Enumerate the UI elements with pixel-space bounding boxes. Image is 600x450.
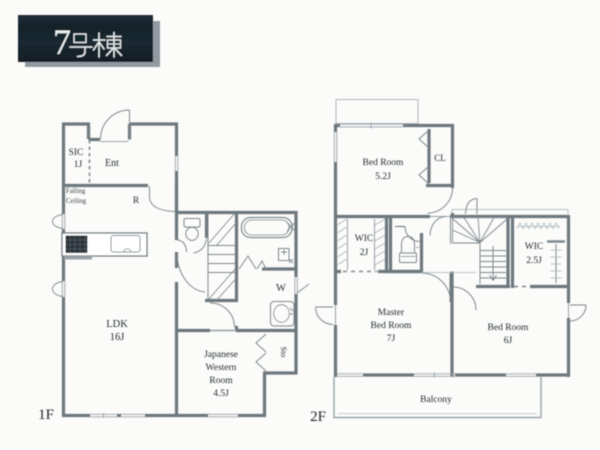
svg-text:W: W xyxy=(276,283,286,294)
svg-text:R: R xyxy=(133,196,140,206)
svg-text:1J: 1J xyxy=(74,160,83,170)
svg-text:Sto: Sto xyxy=(279,347,288,358)
svg-text:SIC: SIC xyxy=(69,148,84,158)
svg-text:Falling: Falling xyxy=(66,188,86,195)
svg-text:Bed Room: Bed Room xyxy=(363,158,405,168)
svg-text:5.2J: 5.2J xyxy=(375,172,391,182)
svg-text:1F: 1F xyxy=(38,407,54,423)
svg-text:7: 7 xyxy=(53,22,71,62)
svg-text:Bed Room: Bed Room xyxy=(488,323,530,333)
svg-text:2.5J: 2.5J xyxy=(526,256,542,266)
svg-text:LDK: LDK xyxy=(106,319,128,330)
svg-text:Japanese: Japanese xyxy=(204,350,238,360)
svg-text:Room: Room xyxy=(209,376,233,386)
svg-text:Western: Western xyxy=(206,363,237,373)
svg-text:CL: CL xyxy=(434,153,446,163)
svg-text:Balcony: Balcony xyxy=(420,395,452,405)
svg-text:6J: 6J xyxy=(504,336,513,346)
svg-text:Ent: Ent xyxy=(105,158,119,169)
svg-text:16J: 16J xyxy=(110,332,125,343)
svg-text:Ceiling: Ceiling xyxy=(66,198,87,205)
svg-text:7J: 7J xyxy=(387,334,396,344)
svg-text:4.5J: 4.5J xyxy=(213,389,229,399)
svg-text:2F: 2F xyxy=(310,409,326,425)
svg-text:WIC: WIC xyxy=(355,234,373,244)
svg-text:Bed Room: Bed Room xyxy=(371,321,413,331)
svg-text:2J: 2J xyxy=(360,248,369,258)
svg-text:WIC: WIC xyxy=(525,242,543,252)
svg-text:Master: Master xyxy=(378,308,405,318)
